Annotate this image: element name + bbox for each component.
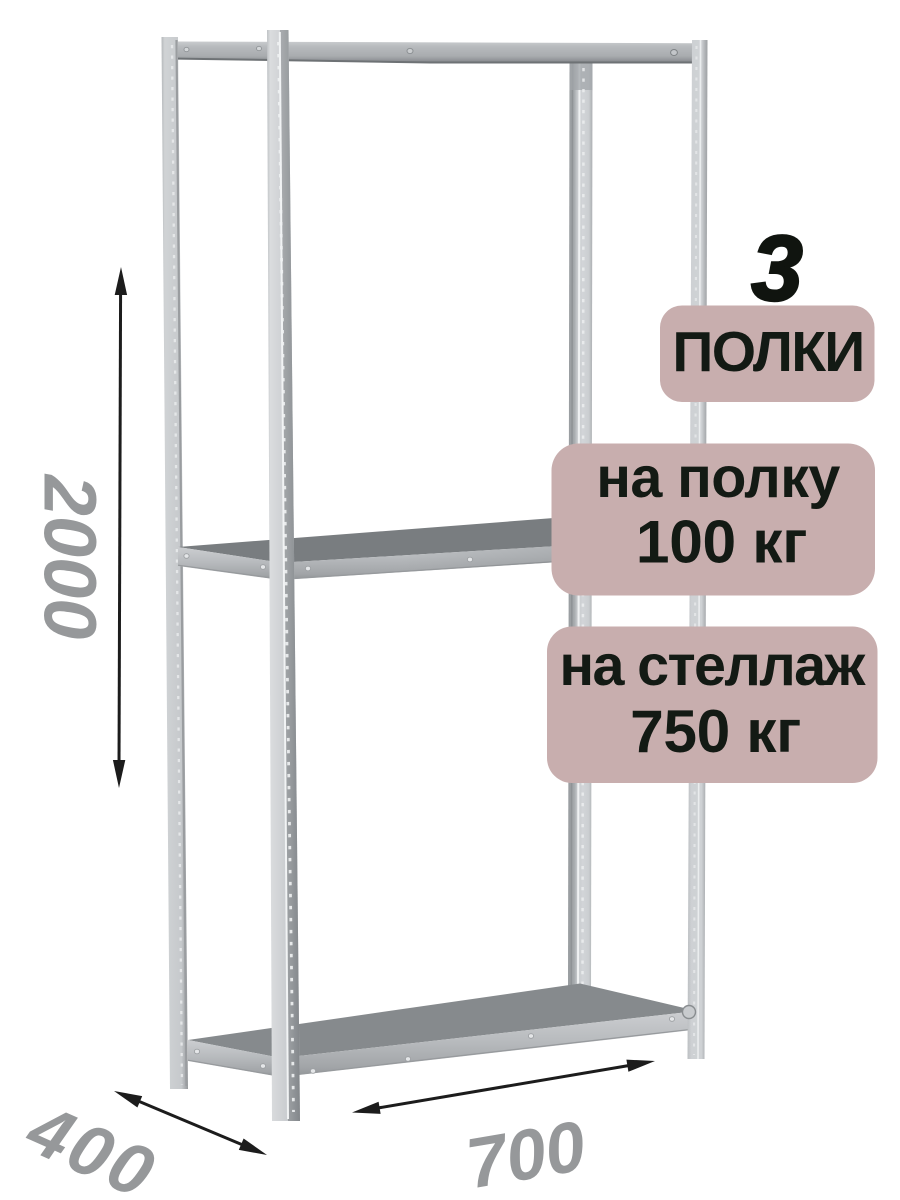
svg-text:ПОЛКИ: ПОЛКИ: [672, 320, 863, 384]
svg-text:на полку: на полку: [596, 446, 840, 510]
svg-text:на стеллаж: на стеллаж: [559, 634, 866, 698]
svg-text:700: 700: [461, 1107, 591, 1200]
svg-text:750 кг: 750 кг: [630, 697, 801, 765]
svg-text:100 кг: 100 кг: [636, 508, 807, 576]
svg-text:2000: 2000: [29, 473, 112, 640]
svg-text:3: 3: [751, 216, 803, 320]
